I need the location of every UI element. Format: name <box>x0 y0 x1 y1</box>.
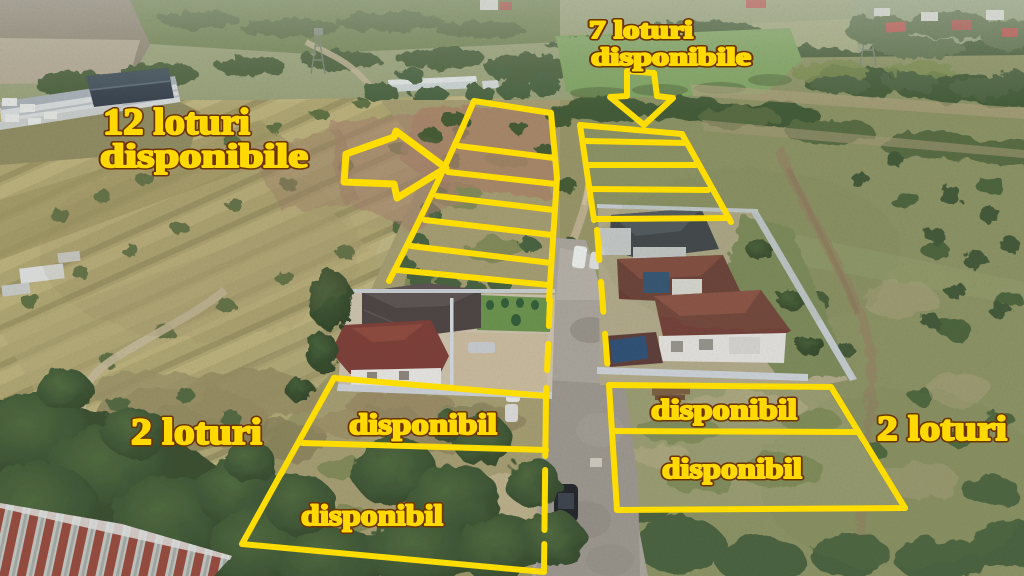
svg-text:disponibil: disponibil <box>301 499 443 532</box>
svg-text:12 loturi: 12 loturi <box>103 102 250 143</box>
svg-text:disponibile: disponibile <box>100 138 308 175</box>
svg-text:2 loturi: 2 loturi <box>131 412 262 453</box>
svg-text:disponibil: disponibil <box>662 454 802 485</box>
svg-text:disponibil: disponibil <box>651 395 797 426</box>
svg-text:7 loturi: 7 loturi <box>589 17 693 44</box>
svg-text:2 loturi: 2 loturi <box>877 409 1007 448</box>
svg-text:disponibil: disponibil <box>349 408 497 441</box>
svg-text:disponibile: disponibile <box>591 44 751 71</box>
